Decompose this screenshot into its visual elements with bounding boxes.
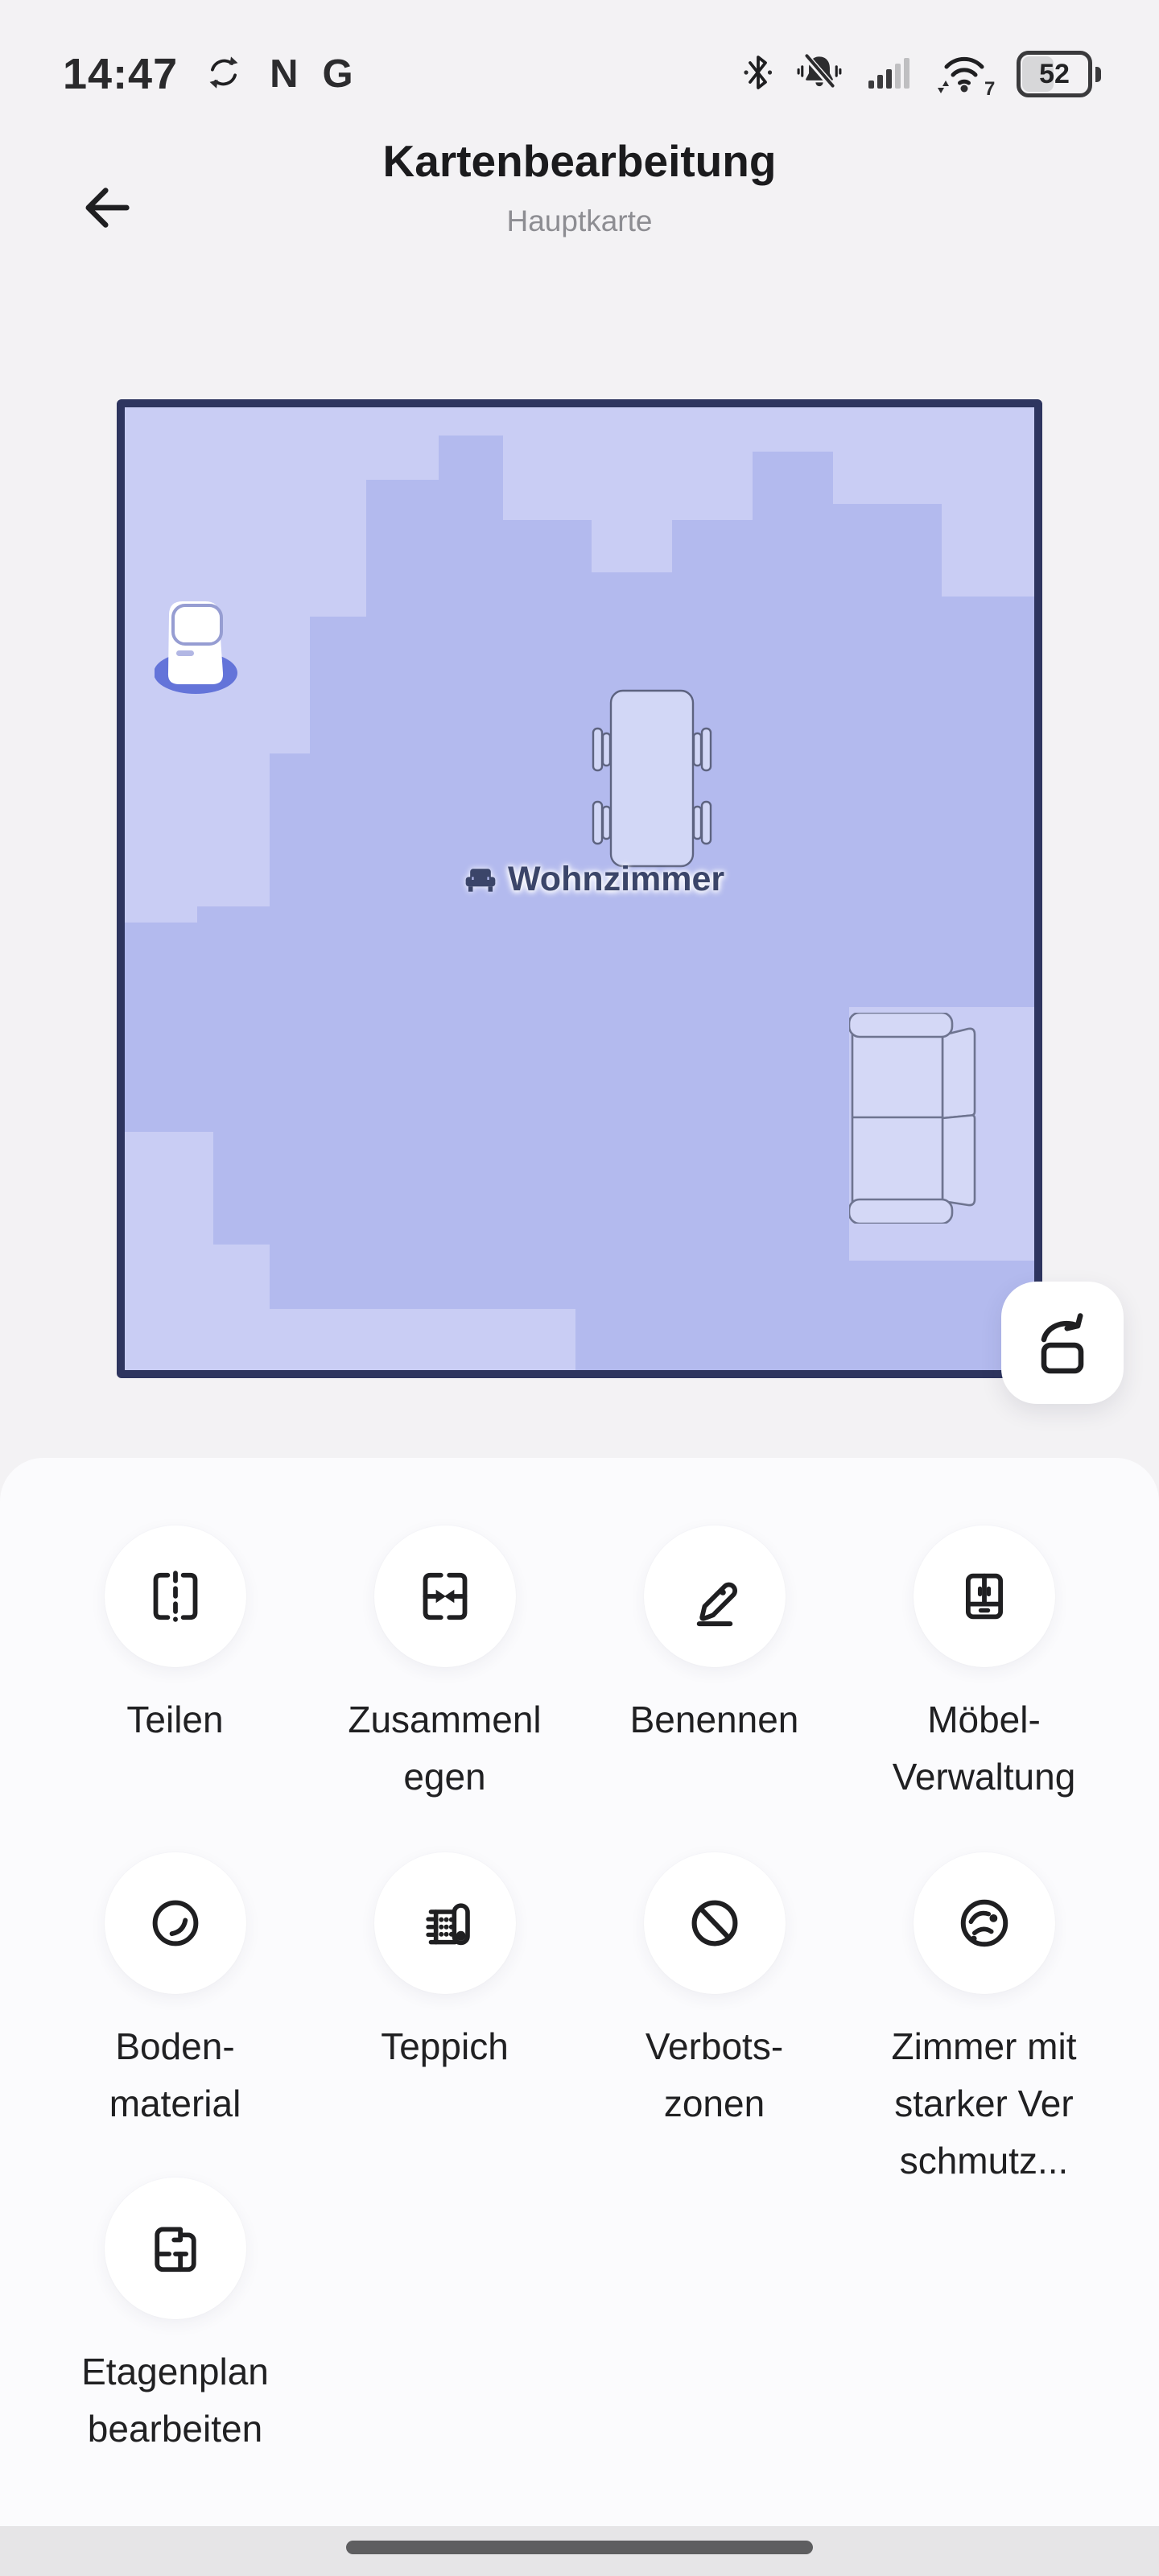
battery-icon: 52 [1017, 51, 1101, 97]
actions-row-2: Boden- material [40, 1852, 1119, 2190]
rename-icon[interactable] [644, 1525, 786, 1667]
header: Kartenbearbeitung Hauptkarte [0, 135, 1159, 238]
mute-vibrate-icon [796, 51, 843, 98]
floor-material-icon[interactable] [105, 1852, 246, 1994]
action-furniture-management[interactable]: Möbel- Verwaltung [849, 1525, 1119, 1806]
back-button[interactable] [71, 172, 142, 243]
map-edit-screen: 14:47 N G [0, 0, 1159, 2576]
sync-icon [202, 51, 245, 98]
no-entry-icon[interactable] [644, 1852, 786, 1994]
action-label: Etagenplan bearbeiten [81, 2343, 269, 2458]
action-label: Benennen [630, 1691, 799, 1748]
page-title: Kartenbearbeitung [0, 135, 1159, 187]
actions-row-1: Teilen Zusammenl egen [40, 1525, 1119, 1806]
couch-icon [463, 862, 498, 898]
notification-letter-n: N [270, 52, 298, 97]
action-merge[interactable]: Zusammenl egen [310, 1525, 579, 1806]
action-heavily-dirty-room[interactable]: Zimmer mit starker Ver schmutz... [849, 1852, 1119, 2190]
action-label: Verbots- zonen [645, 2018, 783, 2132]
battery-nub [1095, 67, 1101, 82]
room-name: Wohnzimmer [508, 860, 724, 899]
gesture-bar-area [0, 2526, 1159, 2576]
battery-percent: 52 [1039, 59, 1070, 90]
action-floor-material[interactable]: Boden- material [40, 1852, 310, 2190]
wardrobe-icon[interactable] [914, 1525, 1055, 1667]
map-actions-sheet: Teilen Zusammenl egen [0, 1458, 1159, 2526]
page-subtitle: Hauptkarte [0, 204, 1159, 238]
wifi-icon: 7 [936, 51, 996, 97]
action-rename[interactable]: Benennen [579, 1525, 849, 1806]
sofa-furniture [849, 1013, 982, 1224]
action-no-go-zones[interactable]: Verbots- zonen [579, 1852, 849, 2190]
split-icon[interactable] [105, 1525, 246, 1667]
room-label[interactable]: Wohnzimmer [463, 860, 724, 899]
status-bar: 14:47 N G [63, 47, 1101, 101]
action-label: Teppich [381, 2018, 509, 2075]
dirt-room-icon[interactable] [914, 1852, 1055, 1994]
merge-icon[interactable] [374, 1525, 516, 1667]
action-label: Zusammenl egen [348, 1691, 541, 1806]
action-label: Möbel- Verwaltung [893, 1691, 1076, 1806]
action-label: Teilen [126, 1691, 223, 1748]
action-carpet[interactable]: Teppich [310, 1852, 579, 2190]
cellular-signal-icon [864, 53, 915, 96]
carpet-icon[interactable] [374, 1852, 516, 1994]
notification-letter-g: G [323, 52, 353, 97]
home-indicator[interactable] [346, 2541, 813, 2554]
action-label: Boden- material [109, 2018, 241, 2132]
bluetooth-icon [741, 50, 775, 99]
wifi-generation-label: 7 [984, 78, 995, 97]
action-split[interactable]: Teilen [40, 1525, 310, 1806]
clock: 14:47 [63, 49, 178, 99]
rotate-map-button[interactable] [1001, 1282, 1124, 1404]
dock-station [155, 601, 283, 705]
actions-row-3: Etagenplan bearbeiten [40, 2178, 1119, 2458]
table-furniture [584, 681, 720, 878]
action-label: Zimmer mit starker Ver schmutz... [892, 2018, 1077, 2190]
floorplan-icon[interactable] [105, 2178, 246, 2319]
map-canvas[interactable]: Wohnzimmer [117, 399, 1042, 1378]
action-edit-floorplan[interactable]: Etagenplan bearbeiten [40, 2178, 310, 2458]
